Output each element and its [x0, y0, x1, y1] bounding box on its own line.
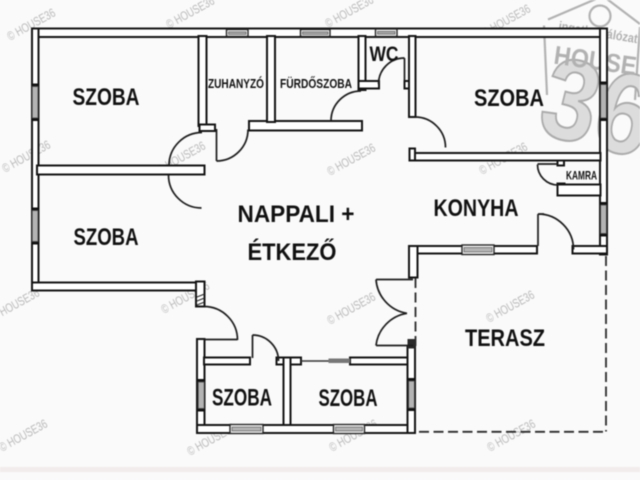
svg-text:KONYHA: KONYHA [434, 195, 519, 222]
svg-text:SZOBA: SZOBA [212, 385, 272, 412]
svg-text:SZOBA: SZOBA [73, 84, 140, 111]
svg-text:SZOBA: SZOBA [319, 385, 378, 412]
svg-text:KAMRA: KAMRA [566, 169, 597, 183]
svg-text:WC: WC [370, 43, 399, 66]
svg-text:NAPPALI +: NAPPALI + [238, 201, 355, 228]
svg-text:ZUHANYZÓ: ZUHANYZÓ [208, 76, 264, 91]
svg-text:FÜRDŐSZOBA: FÜRDŐSZOBA [280, 76, 352, 91]
svg-text:SZOBA: SZOBA [474, 85, 544, 112]
svg-text:TERASZ: TERASZ [465, 325, 545, 352]
svg-text:ÉTKEZŐ: ÉTKEZŐ [248, 238, 337, 266]
svg-text:SZOBA: SZOBA [74, 224, 139, 251]
